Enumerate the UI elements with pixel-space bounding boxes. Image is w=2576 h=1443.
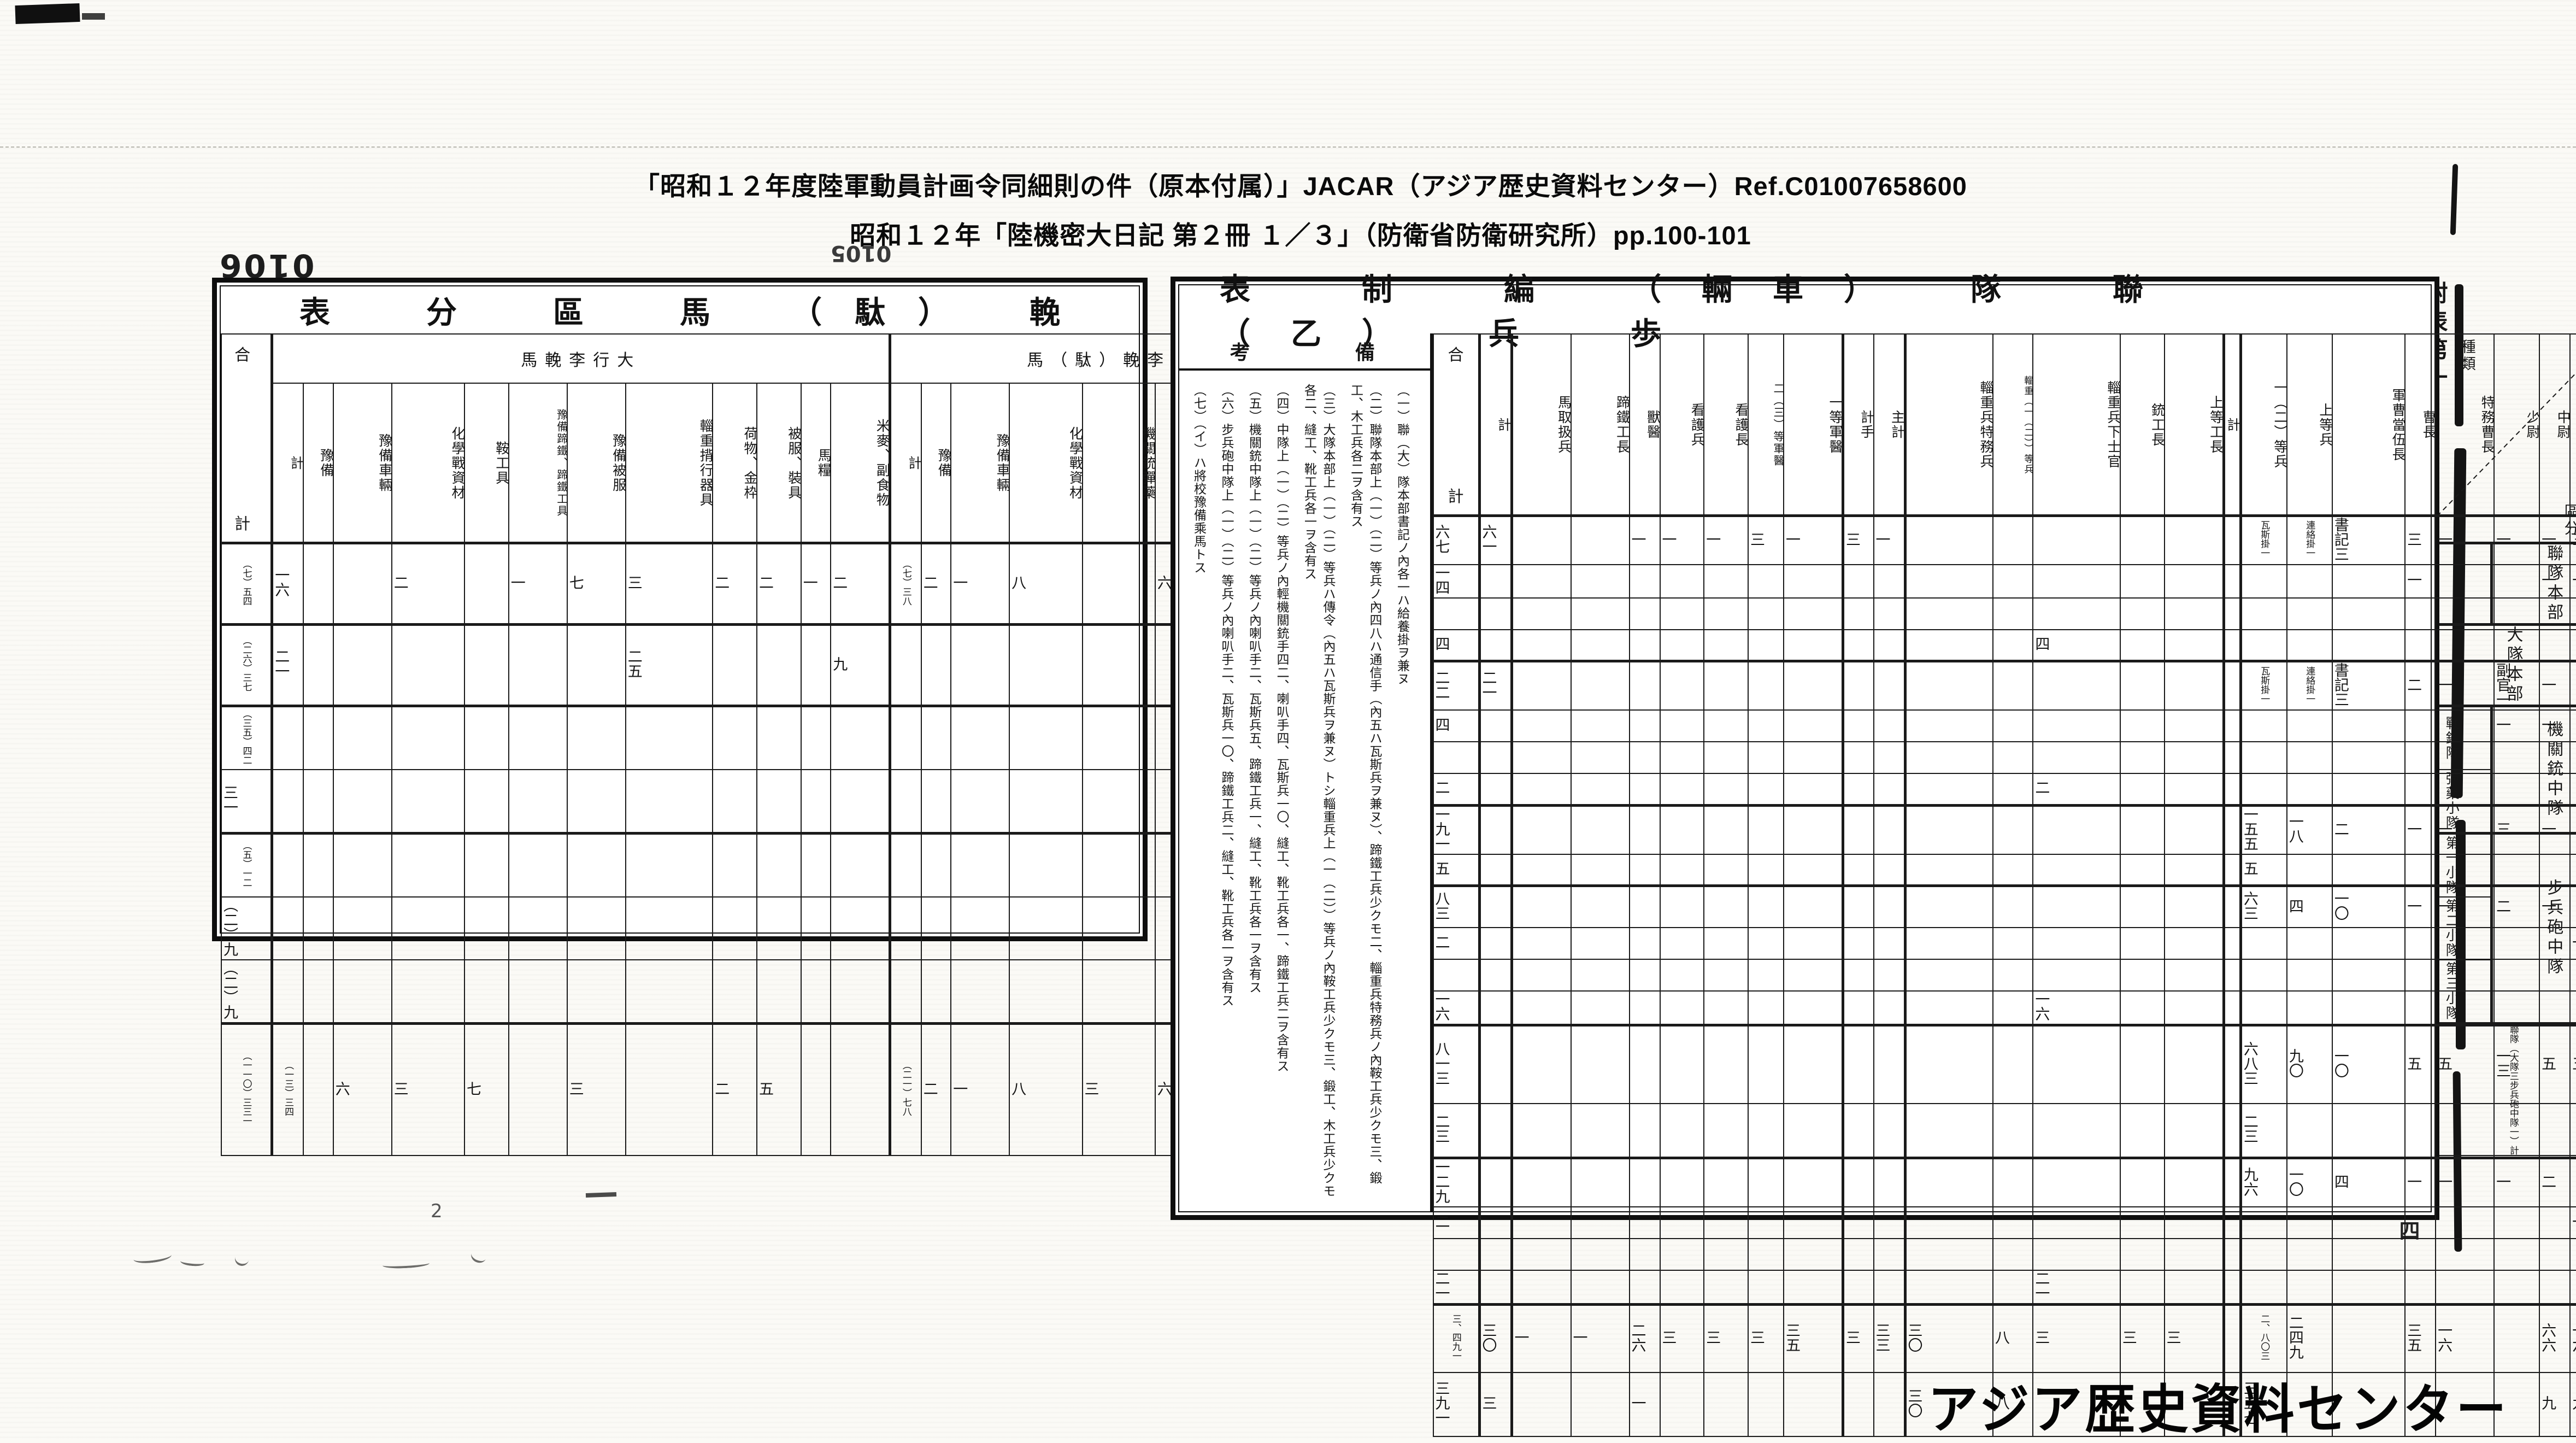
data-cell (2120, 773, 2165, 805)
data-cell (2240, 742, 2287, 773)
table-row: 輓馬 (1433, 598, 2576, 630)
data-cell (2539, 959, 2570, 991)
data-cell (1843, 1207, 1874, 1239)
data-cell (1905, 959, 1993, 991)
data-cell (2120, 710, 2165, 742)
data-cell (2405, 1207, 2436, 1239)
column-header: 中尉 (2539, 334, 2570, 515)
data-cell (1704, 805, 1748, 854)
data-cell (757, 897, 801, 960)
data-cell (2120, 886, 2165, 928)
data-cell (1009, 960, 1082, 1024)
data-cell (1704, 661, 1748, 711)
data-cell (626, 706, 713, 770)
data-cell: 三、四九一 (1433, 1305, 1480, 1372)
column-header: 銃工長 (2120, 334, 2165, 515)
data-cell: 二 (2405, 661, 2436, 711)
data-cell (1571, 515, 1630, 565)
column-group-header: 馬輓李行大 (272, 334, 890, 383)
data-cell (2224, 1239, 2240, 1270)
data-cell (1748, 854, 1784, 886)
data-cell (1660, 1025, 1704, 1104)
data-cell (1784, 565, 1843, 598)
data-cell (1843, 959, 1874, 991)
data-cell: 二 (831, 543, 890, 624)
data-cell (2539, 1270, 2570, 1305)
column-header: 荷物、金枠 (713, 383, 757, 543)
data-cell (1083, 624, 1155, 706)
data-cell (2033, 928, 2120, 959)
data-cell (2405, 773, 2436, 805)
data-cell (509, 1023, 567, 1155)
data-cell: 一 (509, 543, 567, 624)
data-cell (1905, 1104, 1993, 1158)
data-cell (1704, 959, 1748, 991)
data-cell: 二一 (272, 624, 304, 706)
data-cell (1571, 805, 1630, 854)
right-table-title: 表 制 編 （輛車） 隊 聯 （乙） 兵 歩 (1179, 285, 2431, 333)
data-cell: 三〇 (1905, 1305, 1993, 1372)
data-cell (1009, 706, 1082, 770)
data-cell (1874, 630, 1905, 661)
remarks-note: （五）機關銃中隊上（一）（二）等兵ノ內喇叭手二、瓦斯兵五、蹄鐵工兵一、縫工、靴工… (1244, 384, 1263, 1198)
data-cell (464, 833, 509, 897)
data-cell (2405, 598, 2436, 630)
data-cell (1704, 1207, 1748, 1239)
data-cell (1433, 598, 1480, 630)
data-cell: 三 (626, 543, 713, 624)
data-cell (831, 960, 890, 1024)
data-cell (2332, 565, 2405, 598)
data-cell: 二 (2539, 1158, 2570, 1207)
data-cell (1571, 886, 1630, 928)
data-cell (1571, 1025, 1630, 1104)
data-cell (1512, 991, 1571, 1025)
data-cell (2240, 565, 2287, 598)
data-cell (2405, 710, 2436, 742)
data-cell (757, 770, 801, 834)
data-cell (2494, 565, 2539, 598)
data-cell: 一 (2539, 710, 2570, 742)
data-cell (1704, 773, 1748, 805)
data-cell: 一 (2570, 1207, 2576, 1239)
data-cell (2120, 959, 2165, 991)
data-cell: 一六 (2033, 991, 2120, 1025)
data-cell (2033, 565, 2120, 598)
data-cell: 一 (2436, 886, 2494, 928)
data-cell (2332, 854, 2405, 886)
data-cell: （五）一二 (221, 833, 272, 897)
data-cell (1571, 598, 1630, 630)
data-cell (2405, 959, 2436, 991)
data-cell (2033, 1025, 2120, 1104)
data-cell (1009, 624, 1082, 706)
data-cell (831, 1023, 890, 1155)
data-cell (2436, 710, 2494, 742)
data-cell (1660, 710, 1704, 742)
data-cell: 二 (1433, 928, 1480, 959)
data-cell (1993, 1025, 2033, 1104)
data-cell (890, 960, 921, 1024)
table-row: 二二二一瓦斯掛一連絡掛一書記三二一副官一一大隊長一人員大隊本部 (1433, 661, 2576, 711)
data-cell (1843, 565, 1874, 598)
data-cell (1874, 773, 1905, 805)
data-cell: 二 (921, 543, 951, 624)
remarks-header: 考 備 (1179, 333, 1430, 371)
data-cell (1512, 565, 1571, 598)
data-cell (2436, 773, 2494, 805)
data-cell (626, 897, 713, 960)
data-cell (1704, 1025, 1748, 1104)
data-cell (2436, 959, 2494, 991)
data-cell (1748, 1104, 1784, 1158)
data-cell (1660, 742, 1704, 773)
data-cell: （七）五四 (221, 543, 272, 624)
table-row: 一四一一一一一乘馬 (1433, 565, 2576, 598)
data-cell (303, 1023, 333, 1155)
data-cell (1083, 543, 1155, 624)
data-cell (2287, 1270, 2332, 1305)
data-cell (1479, 742, 1512, 773)
data-cell (2120, 1025, 2165, 1104)
data-cell (1784, 1104, 1843, 1158)
data-cell (2240, 991, 2287, 1025)
data-cell (2120, 1158, 2165, 1207)
data-cell (1479, 1025, 1512, 1104)
table-row: 六七六一一一一三一三一瓦斯掛一連絡掛一書記三三一一一三副官一聯隊長一人員聯隊本部 (1433, 515, 2576, 565)
data-cell (2332, 710, 2405, 742)
data-cell (1630, 661, 1660, 711)
data-cell (2570, 630, 2576, 661)
data-cell (303, 770, 333, 834)
data-cell: 五 (2570, 1025, 2576, 1104)
data-cell (1843, 773, 1874, 805)
data-cell (2287, 991, 2332, 1025)
data-cell: 八 (1009, 543, 1082, 624)
data-cell (2287, 1239, 2332, 1270)
data-cell: 五 (757, 1023, 801, 1155)
data-cell (831, 897, 890, 960)
data-cell (2287, 1104, 2332, 1158)
data-cell (1512, 742, 1571, 773)
data-cell (921, 706, 951, 770)
column-header: 看護長 (1704, 334, 1748, 515)
data-cell (2165, 710, 2224, 742)
data-cell (1512, 773, 1571, 805)
data-cell (1512, 1270, 1571, 1305)
column-header: 計 (1479, 334, 1512, 515)
data-cell (2120, 991, 2165, 1025)
data-cell (2224, 598, 2240, 630)
data-cell (509, 897, 567, 960)
column-header: 計手 (1843, 334, 1874, 515)
table-row: 四四駄馬 (1433, 630, 2576, 661)
data-cell (1748, 1025, 1784, 1104)
data-cell (2436, 1104, 2494, 1158)
data-cell (1905, 742, 1993, 773)
gutter-streak (2450, 164, 2459, 235)
data-cell: 四 (2287, 886, 2332, 928)
data-cell (2570, 991, 2576, 1025)
data-cell (1748, 959, 1784, 991)
data-cell (1993, 710, 2033, 742)
data-cell: 一 (2494, 710, 2539, 742)
data-cell (1784, 630, 1843, 661)
data-cell (2120, 805, 2165, 854)
data-cell: 一 (1874, 515, 1905, 565)
data-cell (1630, 1270, 1660, 1305)
data-cell: 一 (1704, 515, 1748, 565)
data-cell (1571, 742, 1630, 773)
data-cell: 九六 (2240, 1158, 2287, 1207)
data-cell (1571, 661, 1630, 711)
data-cell: 六八三 (2240, 1025, 2287, 1104)
data-cell (1748, 991, 1784, 1025)
data-cell (1512, 710, 1571, 742)
data-cell (2570, 710, 2576, 742)
data-cell (1479, 1158, 1512, 1207)
data-cell: 四 (1433, 710, 1480, 742)
data-cell (1993, 886, 2033, 928)
data-cell (1905, 598, 1993, 630)
data-cell: 一〇 (2287, 1158, 2332, 1207)
data-cell (2494, 959, 2539, 991)
data-cell (2240, 1239, 2287, 1270)
caption-line-1: 「昭和１２年度陸軍動員計画令同細則の件（原本付属）」JACAR（アジア歴史資料セ… (525, 162, 2077, 211)
data-cell: 一五五 (2240, 805, 2287, 854)
data-cell (1630, 1158, 1660, 1207)
data-cell (1479, 710, 1512, 742)
data-cell (2033, 1207, 2120, 1239)
data-cell (1479, 959, 1512, 991)
data-cell (1905, 710, 1993, 742)
data-cell: 一〇 (2332, 886, 2405, 928)
data-cell (1905, 565, 1993, 598)
data-cell: 一 (1630, 1372, 1660, 1436)
data-cell: 一二九 (1433, 1158, 1480, 1207)
data-cell (464, 770, 509, 834)
remarks-note: （三）大隊本部上（一）（二）等兵ハ傳令（內五ハ瓦斯兵ヲ兼ヌ）トシ輜重兵上（一（二… (1299, 384, 1337, 1198)
data-cell (1748, 661, 1784, 711)
data-cell (509, 706, 567, 770)
data-cell: 中隊長一 (2570, 886, 2576, 928)
data-cell (2332, 1239, 2405, 1270)
data-cell (1479, 598, 1512, 630)
data-cell (2165, 886, 2224, 928)
data-cell (1905, 1207, 1993, 1239)
data-cell (1630, 710, 1660, 742)
data-cell (1748, 742, 1784, 773)
data-cell: 三 (1083, 1023, 1155, 1155)
column-header: 鞍工具 (464, 383, 509, 543)
data-cell (1784, 773, 1843, 805)
data-cell (1571, 1158, 1630, 1207)
data-cell (2332, 773, 2405, 805)
data-cell (2165, 630, 2224, 661)
data-cell (1630, 1207, 1660, 1239)
data-cell: 一 (2570, 565, 2576, 598)
data-cell (890, 897, 921, 960)
data-cell (890, 706, 921, 770)
data-cell (831, 770, 890, 834)
data-cell (1479, 1104, 1512, 1158)
data-cell: （一三）三四 (272, 1023, 304, 1155)
data-cell (1784, 1372, 1843, 1436)
data-cell (1479, 565, 1512, 598)
data-cell (1905, 1158, 1993, 1207)
data-cell: 一 (2405, 1158, 2436, 1207)
data-cell: （一一〇）三三一 (221, 1023, 272, 1155)
data-cell (1905, 773, 1993, 805)
data-cell (2436, 928, 2494, 959)
data-cell (1571, 854, 1630, 886)
scan-squiggle (233, 1249, 251, 1267)
data-cell (2405, 854, 2436, 886)
data-cell: 書記三 (2332, 515, 2405, 565)
data-cell (1704, 1158, 1748, 1207)
data-cell (1874, 959, 1905, 991)
data-cell (2405, 630, 2436, 661)
data-cell (2240, 959, 2287, 991)
data-cell (1704, 886, 1748, 928)
data-cell (1993, 1270, 2033, 1305)
data-cell (801, 770, 831, 834)
data-cell (1660, 854, 1704, 886)
data-cell (713, 770, 757, 834)
data-cell (2494, 742, 2539, 773)
data-cell (2120, 630, 2165, 661)
data-cell (2224, 1270, 2240, 1305)
data-cell (1512, 598, 1571, 630)
data-cell: （二）九 (221, 897, 272, 960)
data-cell (1512, 886, 1571, 928)
data-cell: 中隊長一 (2570, 1158, 2576, 1207)
data-cell (1660, 1207, 1704, 1239)
data-cell (303, 706, 333, 770)
data-cell (2224, 886, 2240, 928)
data-cell (2033, 805, 2120, 854)
column-header: 一等軍醫 (1784, 334, 1843, 515)
data-cell (2287, 630, 2332, 661)
data-cell (2436, 742, 2494, 773)
data-cell (392, 706, 464, 770)
data-cell (1704, 991, 1748, 1025)
stray-pencil-mark: 2 (431, 1200, 443, 1222)
data-cell (2165, 991, 2224, 1025)
data-cell: 八三 (1433, 886, 1480, 928)
archive-caption: 「昭和１２年度陸軍動員計画令同細則の件（原本付属）」JACAR（アジア歴史資料セ… (525, 162, 2077, 260)
data-cell: 一 (2436, 661, 2494, 711)
table-row: 一二九九六一〇四一一一二中隊長一人員步兵砲中隊 (1433, 1158, 2576, 1207)
table-row: 二二駄馬 (1433, 773, 2576, 805)
data-cell (2436, 1207, 2494, 1239)
data-cell (1660, 773, 1704, 805)
data-cell (2240, 710, 2287, 742)
data-cell (1660, 598, 1704, 630)
data-cell (2570, 1270, 2576, 1305)
data-cell (2240, 928, 2287, 959)
data-cell: 二 (713, 543, 757, 624)
data-cell (921, 770, 951, 834)
data-cell (2287, 773, 2332, 805)
data-cell (1479, 1239, 1512, 1270)
data-cell: 一 (2436, 1158, 2494, 1207)
data-cell (1630, 991, 1660, 1025)
data-cell (1905, 1025, 1993, 1104)
data-cell (626, 833, 713, 897)
data-cell (2405, 1270, 2436, 1305)
data-cell (1874, 710, 1905, 742)
data-cell: 三 (1748, 1305, 1784, 1372)
data-cell (1843, 710, 1874, 742)
data-cell (2224, 773, 2240, 805)
data-cell (2570, 1104, 2576, 1158)
data-cell (2165, 661, 2224, 711)
data-cell (303, 897, 333, 960)
scan-blotch-topleft-2 (82, 13, 105, 20)
data-cell (951, 897, 1009, 960)
data-cell (1704, 1270, 1748, 1305)
data-cell: 三一 (221, 770, 272, 834)
data-cell (2224, 1207, 2240, 1239)
data-cell (951, 833, 1009, 897)
remarks-panel: 考 備 （一）聯（大）隊本部書記ノ內各一ハ給養掛ヲ兼ヌ（二）聯隊本部上（一）（二… (1179, 333, 1433, 1211)
data-cell (2165, 1270, 2224, 1305)
infantry-regiment-establishment-table: 表 制 編 （輛車） 隊 聯 （乙） 兵 歩 考 備 （一）聯（大）隊本部書記ノ… (1171, 277, 2439, 1220)
data-cell (2539, 1104, 2570, 1158)
data-cell (2224, 1158, 2240, 1207)
data-cell (1874, 1270, 1905, 1305)
data-cell: 一 (2405, 565, 2436, 598)
data-cell (2539, 630, 2570, 661)
data-cell (2436, 598, 2494, 630)
data-cell (1993, 515, 2033, 565)
data-cell (1748, 1372, 1784, 1436)
data-cell (1993, 773, 2033, 805)
data-cell: 一六 (272, 543, 304, 624)
data-cell (1660, 991, 1704, 1025)
column-header: 化學戰資材 (392, 383, 464, 543)
data-cell (1571, 959, 1630, 991)
data-cell (1571, 565, 1630, 598)
data-cell (1660, 661, 1704, 711)
data-cell (333, 770, 392, 834)
data-cell (1704, 598, 1748, 630)
data-cell (1660, 886, 1704, 928)
data-cell (801, 1023, 831, 1155)
data-cell (2494, 1239, 2539, 1270)
data-cell (567, 770, 626, 834)
data-cell (1874, 1104, 1905, 1158)
data-cell: 一八 (2287, 805, 2332, 854)
data-cell (1704, 1372, 1748, 1436)
remarks-note: （二）聯隊本部上（一）（二）等兵ノ內四八ハ通信手（內五ハ瓦斯兵ヲ兼ヌ）、蹄鐵工兵… (1346, 384, 1384, 1198)
data-cell: （二）九 (221, 960, 272, 1024)
data-cell: 三〇 (1479, 1305, 1512, 1372)
data-cell (333, 960, 392, 1024)
data-cell (713, 897, 757, 960)
data-cell (303, 833, 333, 897)
column-header: 獸醫 (1630, 334, 1660, 515)
data-cell (1433, 959, 1480, 991)
data-cell (2287, 598, 2332, 630)
pack-horse-allocation-table: 表 分 區 馬 （駄） 輓 合計馬輓李行大馬（駄）輓李行小隊聯馬（駄）李行小隊大… (212, 278, 1148, 941)
data-cell (2570, 661, 2576, 711)
data-cell (1748, 1239, 1784, 1270)
data-cell (1083, 770, 1155, 834)
column-header: 計 (2224, 334, 2240, 515)
data-cell: 六七 (1433, 515, 1480, 565)
